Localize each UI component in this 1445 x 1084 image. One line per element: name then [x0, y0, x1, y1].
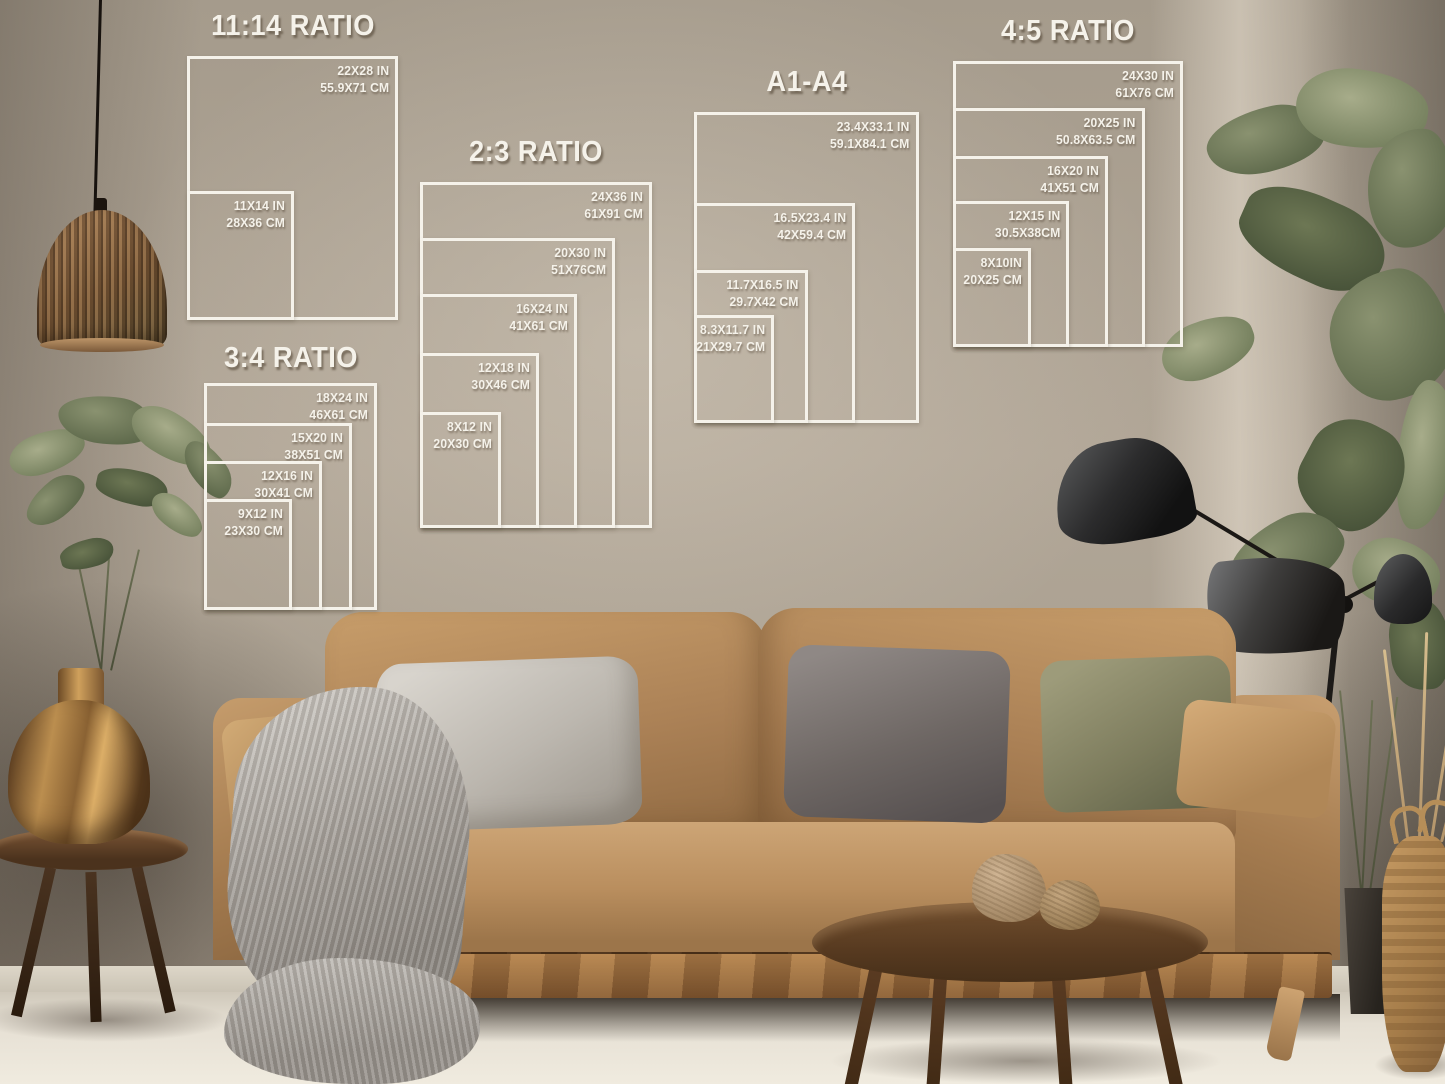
ceramic-vase-small: [1040, 880, 1100, 930]
size-label: 11X14 IN 28X36 CM: [226, 198, 285, 231]
size-guide-2-3-ratio: 2:3 RATIO 24X36 IN61X91 CM 20X30 IN51X76…: [420, 182, 652, 528]
guide-title: 4:5 RATIO: [1001, 15, 1135, 48]
size-label-cm: 55.9X71 CM: [320, 80, 389, 97]
pillow-tan-right: [1175, 698, 1337, 819]
size-label-cm: 50.8X63.5 CM: [1056, 132, 1136, 149]
size-label-in: 16X24 IN: [509, 301, 568, 318]
pillow-dark-gray: [783, 644, 1011, 824]
size-label-cm: 23X30 CM: [224, 523, 283, 540]
size-guide-3-4-ratio: 3:4 RATIO 18X24 IN46X61 CM 15X20 IN38X51…: [204, 383, 377, 610]
size-label-in: 20X30 IN: [551, 245, 606, 262]
guide-title: A1-A4: [766, 66, 847, 99]
size-label-cm: 28X36 CM: [226, 215, 285, 232]
size-label-in: 9X12 IN: [224, 506, 283, 523]
size-label-in: 23.4X33.1 IN: [830, 119, 910, 136]
size-label-in: 12X16 IN: [254, 468, 313, 485]
size-label-in: 22X28 IN: [320, 63, 389, 80]
size-label-in: 12X18 IN: [471, 360, 530, 377]
size-label-cm: 61X91 CM: [584, 206, 643, 223]
size-rect: 8X12 IN20X30 CM: [420, 412, 501, 528]
size-label-cm: 29.7X42 CM: [727, 294, 799, 311]
size-label-in: 12X15 IN: [994, 208, 1060, 225]
guide-title: 2:3 RATIO: [469, 136, 603, 169]
size-label-cm: 59.1X84.1 CM: [830, 136, 910, 153]
size-label-cm: 61X76 CM: [1115, 85, 1174, 102]
size-label-cm: 30.5X38CM: [994, 225, 1060, 242]
size-label-cm: 20X30 CM: [433, 436, 492, 453]
size-label-in: 16.5X23.4 IN: [773, 210, 846, 227]
size-label-in: 8X10IN: [963, 255, 1022, 272]
size-label-in: 24X30 IN: [1115, 68, 1174, 85]
size-label-cm: 51X76CM: [551, 262, 606, 279]
size-label-cm: 46X61 CM: [309, 407, 368, 424]
size-guide-11-14-ratio: 11:14 RATIO 22X28 IN 55.9X71 CM 11X14 IN…: [187, 56, 398, 320]
size-label-cm: 30X46 CM: [471, 377, 530, 394]
size-label-cm: 20X25 CM: [963, 272, 1022, 289]
size-label-cm: 21X29.7 CM: [696, 339, 765, 356]
size-label-cm: 41X61 CM: [509, 318, 568, 335]
size-label-in: 24X36 IN: [584, 189, 643, 206]
size-label-in: 11.7X16.5 IN: [727, 277, 799, 294]
side-table-shadow: [0, 998, 230, 1042]
size-label-in: 8.3X11.7 IN: [696, 322, 765, 339]
size-rect: 11X14 IN 28X36 CM: [187, 191, 294, 320]
size-label-in: 20X25 IN: [1056, 115, 1136, 132]
blanket-pool: [224, 958, 480, 1084]
size-label: 22X28 IN 55.9X71 CM: [320, 63, 389, 96]
size-label-in: 18X24 IN: [309, 390, 368, 407]
size-guide-4-5-ratio: 4:5 RATIO 24X30 IN61X76 CM 20X25 IN50.8X…: [953, 61, 1183, 347]
size-rect: 8.3X11.7 IN21X29.7 CM: [694, 315, 774, 423]
pendant-lamp-rim: [40, 338, 164, 352]
size-rect: 8X10IN20X25 CM: [953, 248, 1031, 347]
size-label-in: 16X20 IN: [1040, 163, 1099, 180]
woven-basket: [1382, 836, 1445, 1072]
guide-title: 11:14 RATIO: [211, 10, 375, 43]
size-guide-a1-a4: A1-A4 23.4X33.1 IN59.1X84.1 CM 16.5X23.4…: [694, 112, 919, 423]
guide-title: 3:4 RATIO: [224, 342, 358, 375]
size-label-in: 8X12 IN: [433, 419, 492, 436]
size-label-in: 11X14 IN: [226, 198, 285, 215]
size-label-cm: 42X59.4 CM: [773, 227, 846, 244]
size-label-in: 15X20 IN: [284, 430, 343, 447]
size-rect: 9X12 IN23X30 CM: [204, 499, 292, 610]
size-label-cm: 41X51 CM: [1040, 180, 1099, 197]
